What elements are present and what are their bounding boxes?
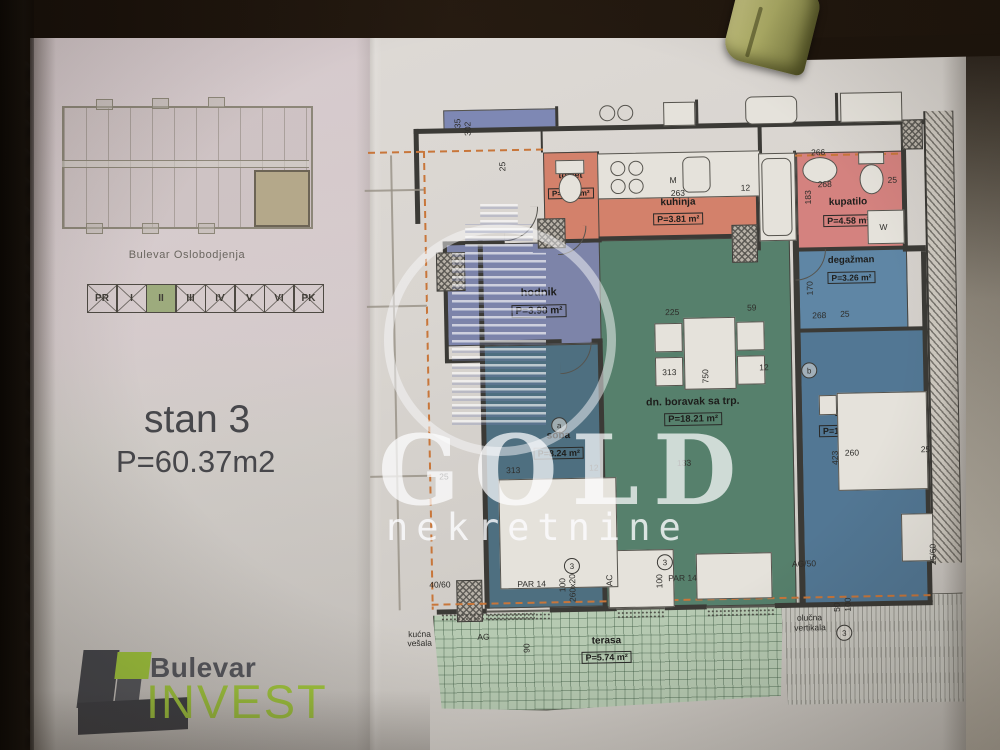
dimension-label: PAR 14 [668,573,697,584]
dimension-label: 225 [665,307,679,317]
dimension-label: 750 [700,369,710,383]
bathtub [761,158,792,237]
dimension-label: 183 [803,190,813,204]
chair [654,323,683,353]
room-area-terasa: P=5.74 m² [581,651,632,664]
toilet-tank [858,152,884,164]
room-name-kuhinja: kuhinja [660,197,695,209]
table-surface [0,0,1000,38]
dimension-label: 90 [521,643,531,653]
dimension-label: olučna [797,612,822,622]
neighbour-fixture [840,92,903,123]
chair [736,321,765,351]
dimension-label: 268 [812,310,826,320]
neighbour-bathtub [745,96,798,125]
dimension-label: 263 [671,188,685,198]
neighbour-counter [663,102,695,127]
room-area-kupatilo: P=4.58 m² [823,214,874,227]
room-area-degazman: P=3.26 m² [827,271,875,284]
bed [837,391,929,491]
column-hatch [731,224,758,262]
dimension-label: 260 [845,447,859,457]
table-surface [798,34,1000,60]
page-edge-shadow [942,40,968,750]
dimension-label: vešala [407,638,432,648]
watermark-building-icon [452,204,546,426]
dimension-label: vertikala [794,622,826,633]
wall [835,93,839,121]
wall [555,106,558,126]
door-sill-dots [617,610,665,619]
dimension-label: 302 [462,122,472,136]
dimension-label: AG/50 [792,558,816,568]
dimension-label: AG [477,632,489,642]
dimension-label: 423 [830,451,840,465]
dimension-label: 25/60 [928,544,938,565]
dimension-label: AC [604,574,614,586]
column-hatch [901,119,923,149]
service-line [368,148,544,153]
door-sill-dots [707,608,775,617]
neighbour-terrace [781,593,965,705]
dimension-label: 40/60 [429,579,450,589]
dimension-label: 170 [805,281,815,295]
nightstand [819,395,837,415]
dimension-label: 100 [557,578,567,592]
photo-of-floor-plan-page: Bulevar Oslobodjenja PRIIIIIIIVVVIPK sta… [0,0,1000,750]
watermark-subtitle: nekretnine [386,506,689,549]
dimension-label: 100 [654,574,664,588]
door-sill-dots [487,612,550,621]
room-area-kuhinja: P=3.81 m² [653,212,704,225]
dimension-label: 260x20 [567,574,578,602]
neighbour-burner-icon [617,105,633,121]
dimension-label: 59 [747,302,757,312]
dimension-label: 25 [840,309,850,319]
dimension-label: 25 [921,444,931,454]
dimension-label: 268 [818,179,832,189]
page-curl-shadow [30,690,430,750]
dimension-label: 100 [843,597,853,611]
dimension-label: 25 [497,162,507,172]
living-table [696,552,773,599]
dimension-label: 25 [887,175,897,185]
spiral-binding [0,0,34,750]
dimension-label: 313 [662,367,676,377]
toilet-tank [555,160,584,175]
dimension-label: PAR 14 [517,579,546,590]
kitchen-sink [682,156,711,193]
room-name-kupatilo: kupatilo [829,196,868,208]
room-name-terasa: terasa [592,635,622,647]
dimension-label: 12 [741,183,751,193]
dimension-label: M [669,175,676,185]
dimension-label: 50 [832,602,842,612]
dimension-label: 35 [452,119,462,129]
room-name-degazman: degažman [828,254,875,266]
dimension-label: W [879,222,887,232]
dimension-label: 266 [811,147,825,157]
wall [414,129,421,224]
room-name-boravak: dn. boravak sa trp. [646,395,740,409]
neighbour-burner-icon [599,105,615,121]
page-stack-edge [966,0,1000,750]
wall [695,100,698,124]
dimension-label: 12 [759,362,769,372]
